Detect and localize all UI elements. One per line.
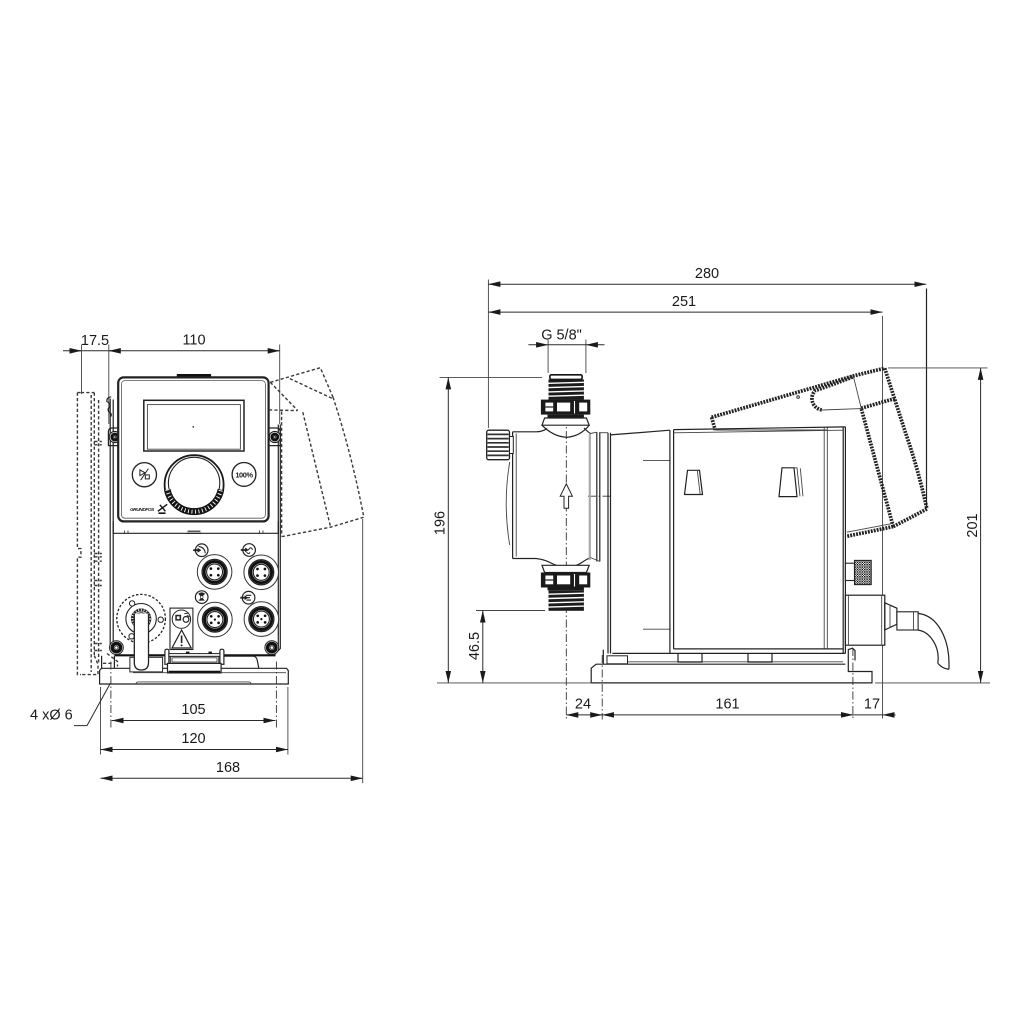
svg-text:251: 251 — [672, 294, 696, 310]
svg-text:168: 168 — [216, 760, 240, 776]
svg-text:24: 24 — [575, 697, 591, 713]
svg-text:GRUNDFOS: GRUNDFOS — [130, 507, 155, 513]
svg-text:4 xØ 6: 4 xØ 6 — [30, 708, 73, 724]
svg-text:196: 196 — [433, 511, 449, 535]
svg-text:201: 201 — [965, 513, 981, 537]
svg-text:G 5/8": G 5/8" — [541, 328, 582, 344]
svg-text:17: 17 — [864, 697, 880, 713]
svg-text:105: 105 — [181, 702, 205, 718]
svg-text:110: 110 — [182, 333, 205, 349]
svg-text:46.5: 46.5 — [467, 632, 483, 660]
svg-text:17.5: 17.5 — [81, 333, 109, 349]
svg-text:100%: 100% — [235, 470, 253, 479]
svg-text:120: 120 — [181, 731, 205, 747]
svg-text:161: 161 — [715, 697, 739, 713]
svg-text:280: 280 — [695, 266, 719, 282]
